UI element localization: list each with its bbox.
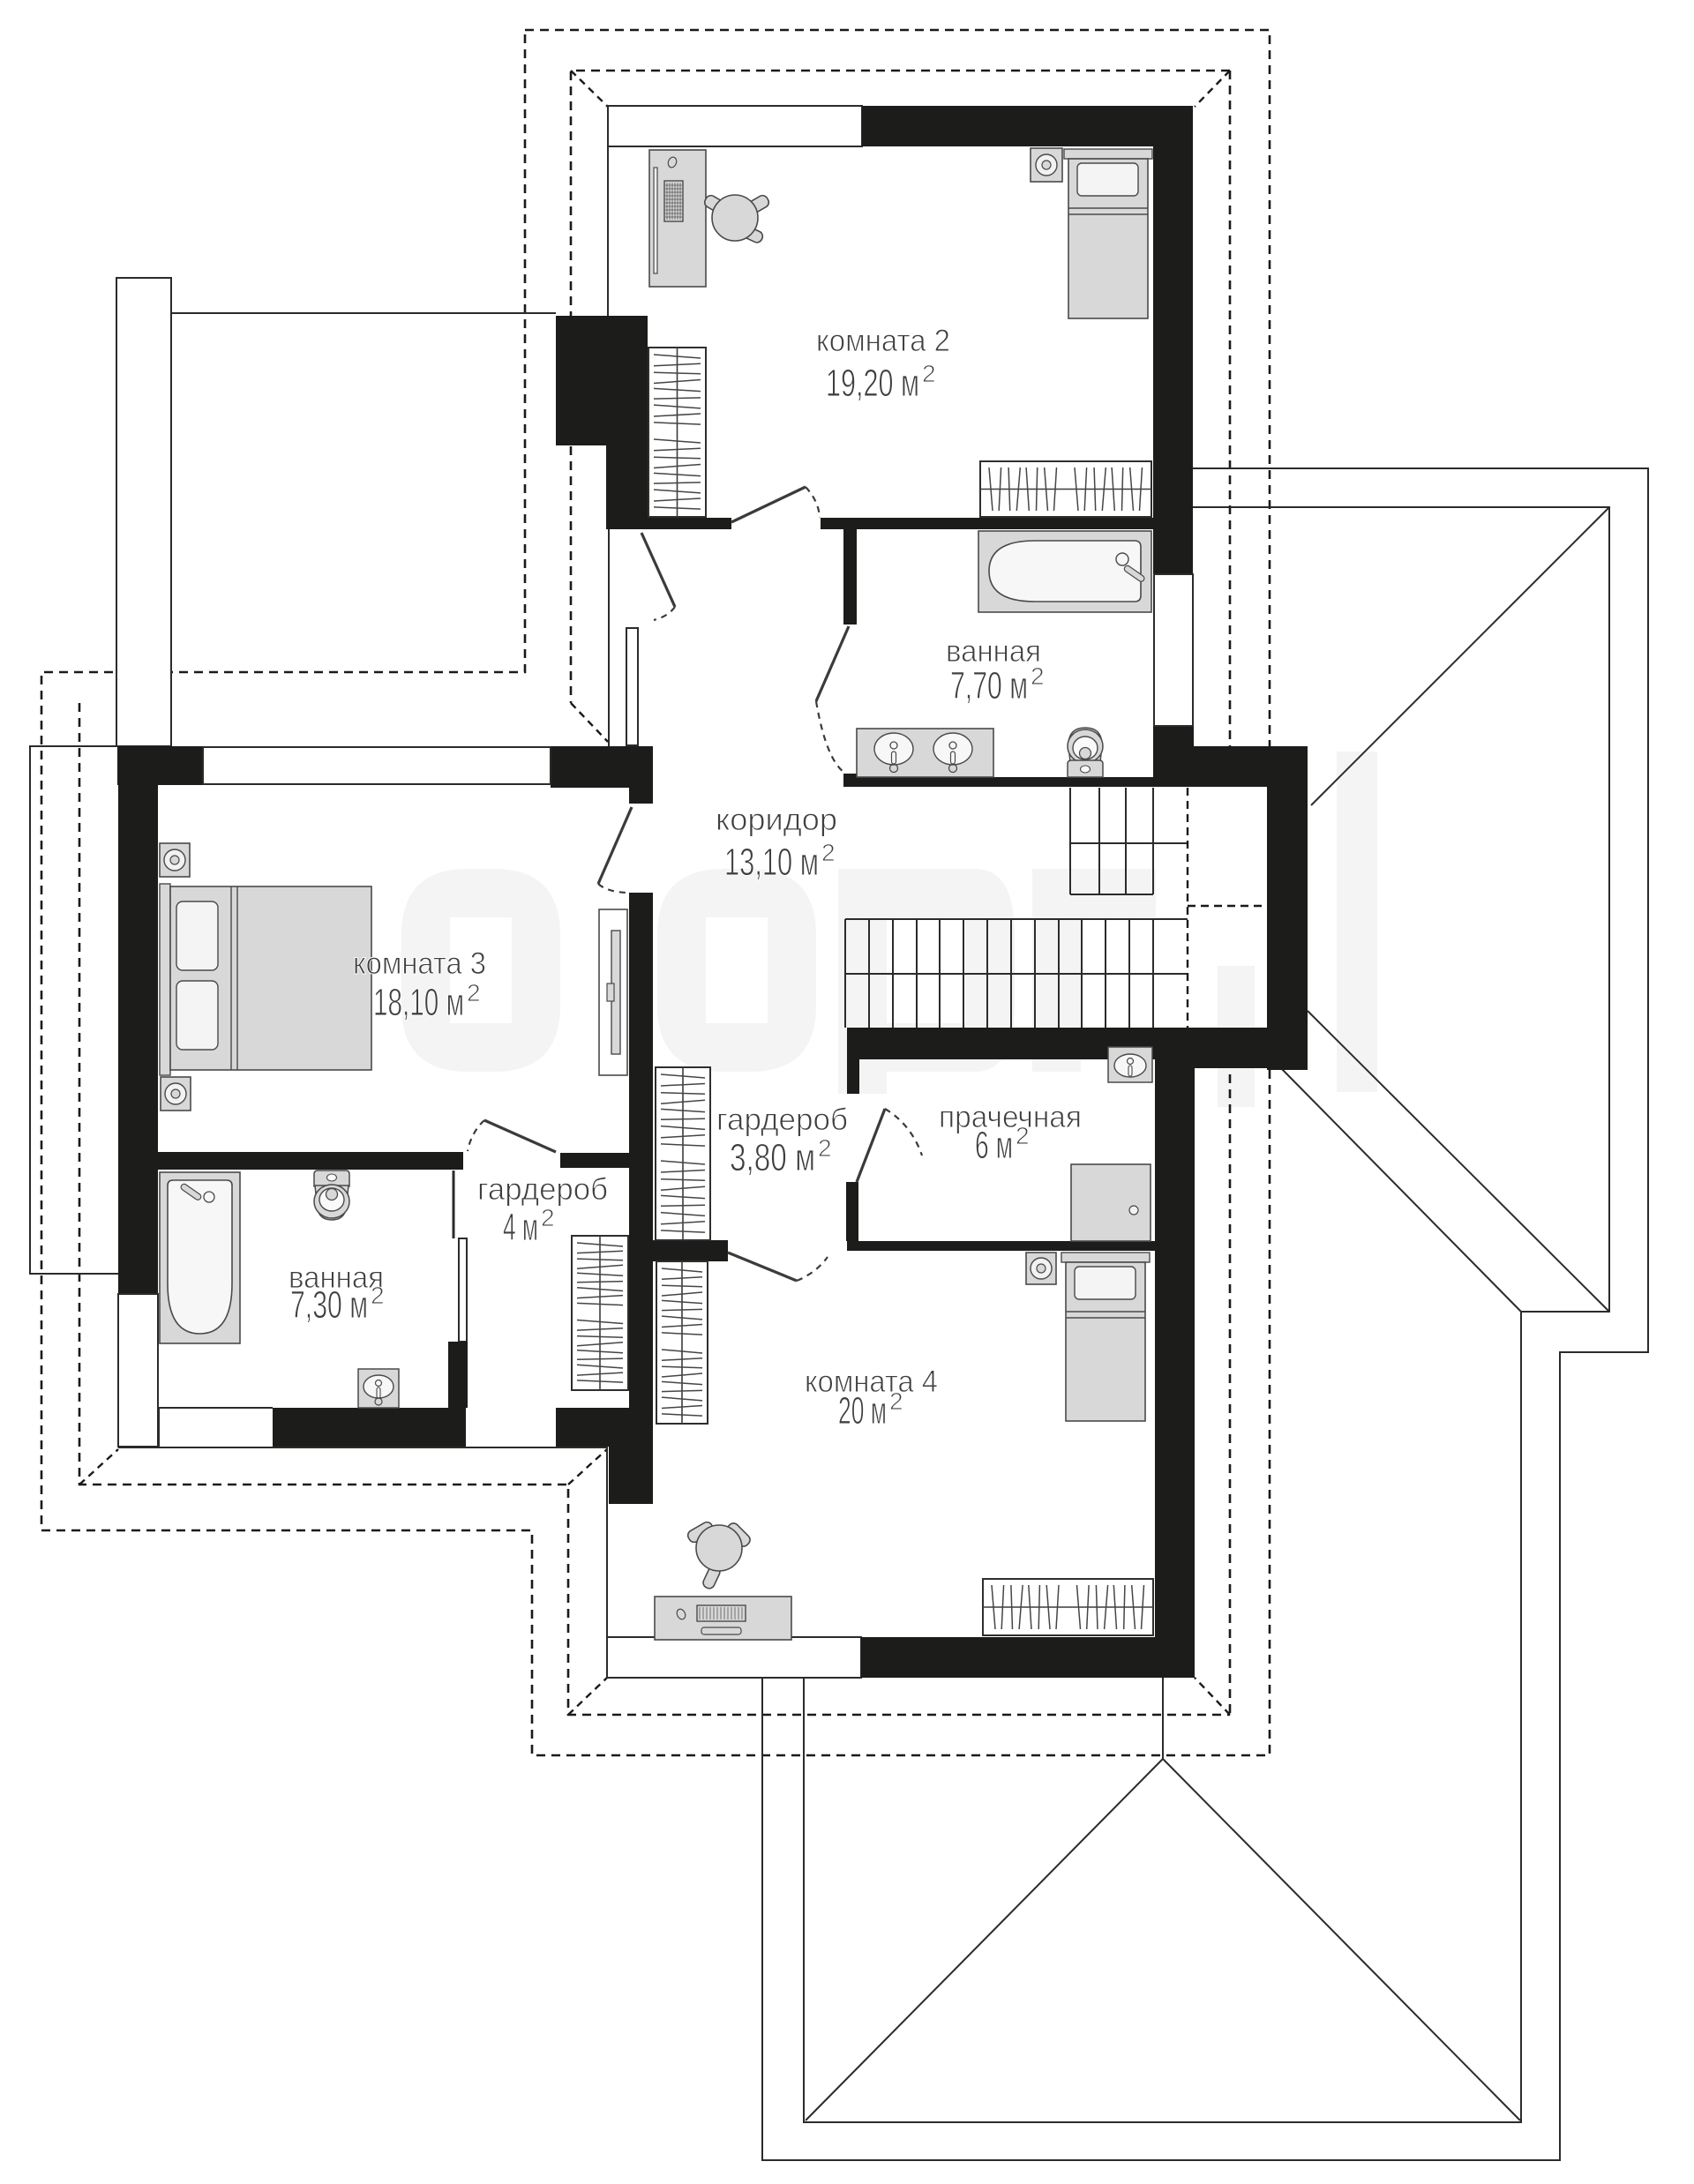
svg-text:2: 2	[818, 1134, 832, 1162]
svg-text:13,10 м: 13,10 м	[724, 841, 819, 884]
svg-text:гардероб: гардероб	[477, 1172, 608, 1207]
svg-text:4 м: 4 м	[503, 1206, 538, 1249]
svg-text:комната 3: комната 3	[353, 946, 486, 981]
svg-text:комната 2: комната 2	[816, 324, 950, 358]
svg-text:гардероб: гардероб	[716, 1103, 848, 1137]
svg-text:2: 2	[541, 1204, 555, 1231]
svg-text:2: 2	[1031, 662, 1045, 690]
svg-text:3,80 м: 3,80 м	[730, 1136, 815, 1179]
svg-text:2: 2	[1016, 1122, 1030, 1149]
svg-text:19,20 м: 19,20 м	[826, 362, 919, 405]
svg-text:2: 2	[467, 979, 481, 1006]
svg-text:6 м: 6 м	[975, 1124, 1013, 1167]
svg-text:2: 2	[922, 360, 936, 387]
svg-text:коридор: коридор	[716, 803, 837, 837]
svg-text:18,10 м: 18,10 м	[373, 981, 464, 1024]
svg-text:2: 2	[889, 1387, 903, 1415]
svg-text:7,30 м: 7,30 м	[290, 1283, 368, 1327]
svg-text:2: 2	[371, 1282, 385, 1309]
svg-text:7,70 м: 7,70 м	[950, 664, 1028, 707]
svg-text:2: 2	[821, 839, 836, 866]
svg-text:20 м: 20 м	[838, 1389, 887, 1432]
